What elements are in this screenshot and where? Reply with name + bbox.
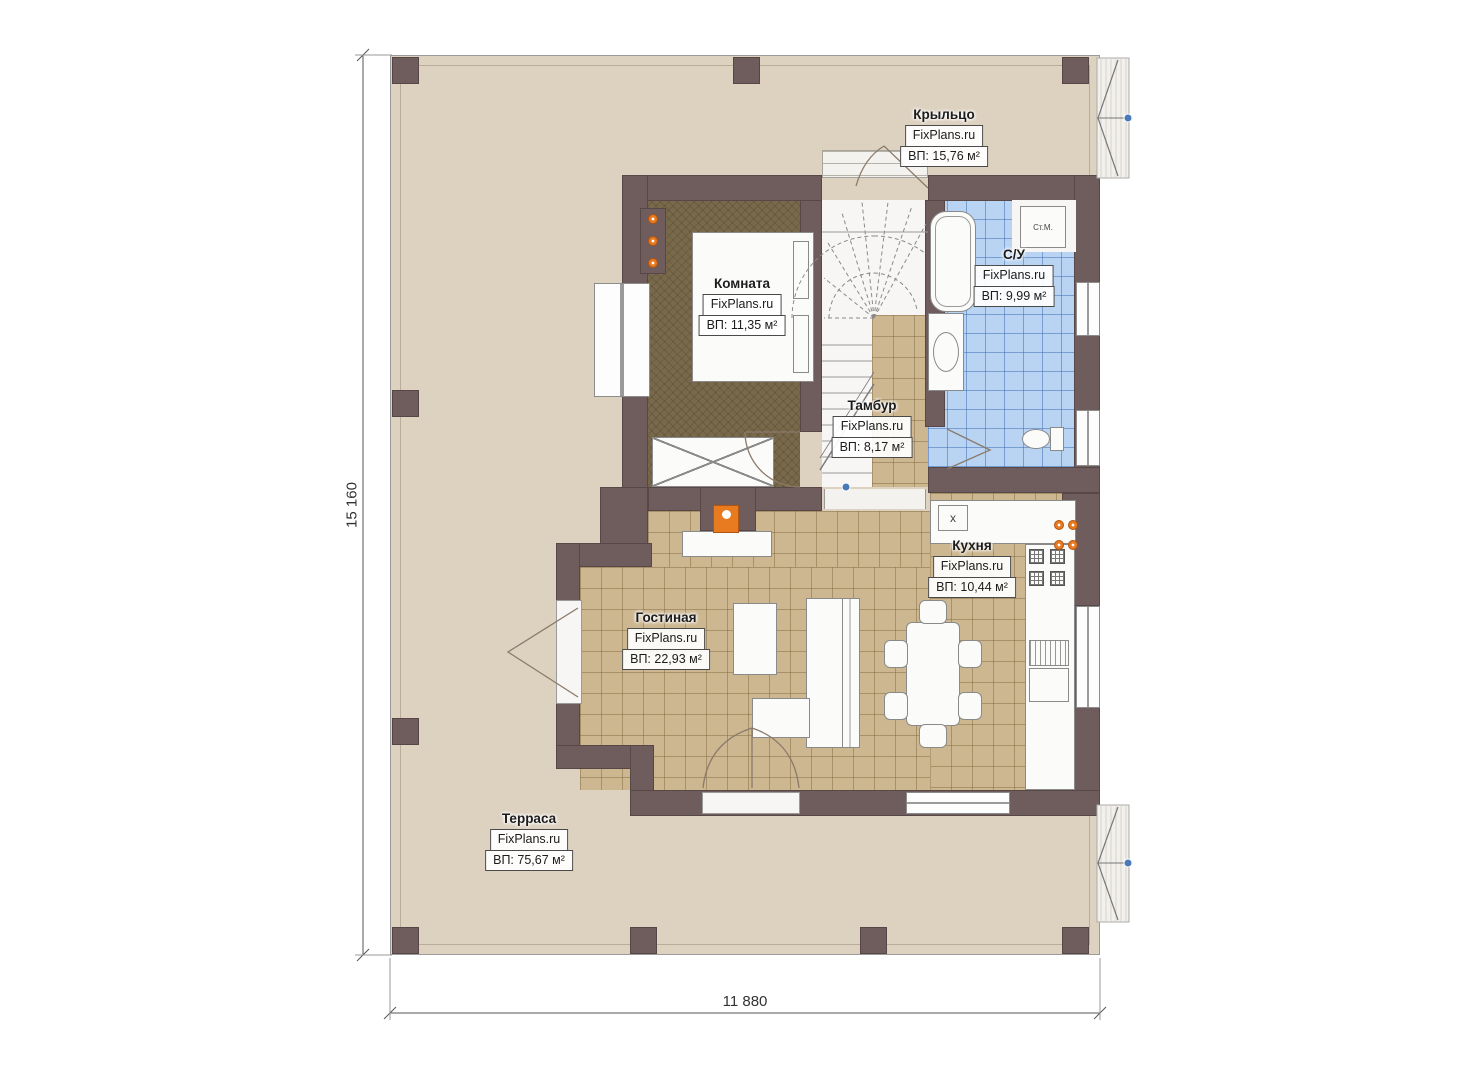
height-dimension-label: 15 160 (344, 482, 361, 528)
wardrobe (652, 437, 774, 487)
room-area: ВП: 22,93 м² (622, 649, 710, 671)
light-icon (1054, 540, 1064, 550)
dining-chair (884, 692, 908, 720)
light-icon (1068, 520, 1078, 530)
living-window (906, 792, 1010, 814)
room-name: С/У (1003, 247, 1025, 262)
exterior-steps (1097, 805, 1132, 922)
coffee-table (733, 603, 777, 675)
sofa (806, 598, 860, 748)
room-label-terrace: Терраса FixPlans.ru ВП: 75,67 м² (485, 811, 573, 871)
room-area: ВП: 75,67 м² (485, 850, 573, 872)
width-dimension-label: 11 880 (723, 993, 768, 1010)
bathtub (930, 211, 976, 312)
bathroom-sink (933, 332, 959, 372)
room-name: Терраса (502, 811, 556, 826)
exterior-steps (1097, 58, 1132, 178)
room-label-living: Гостиная FixPlans.ru ВП: 22,93 м² (622, 610, 710, 670)
kitchen-drainer (1029, 640, 1069, 666)
column (1062, 57, 1089, 84)
stove-burner (1029, 571, 1044, 586)
room-label-vestibule: Тамбур FixPlans.ru ВП: 8,17 м² (832, 398, 913, 458)
dining-chair (919, 600, 947, 624)
bathtub-inner (935, 216, 971, 307)
column (860, 927, 887, 954)
stove-burner (1029, 549, 1044, 564)
room-brand: FixPlans.ru (975, 265, 1054, 287)
fireplace-dot (722, 510, 731, 519)
kitchen-window (1076, 606, 1100, 708)
room-area: ВП: 15,76 м² (900, 146, 988, 168)
column (392, 390, 419, 417)
room-name: Комната (714, 276, 770, 291)
hall-opening (824, 489, 926, 509)
stairs-floor (822, 200, 928, 315)
wall (928, 467, 1100, 493)
pillow (793, 315, 809, 373)
light-icon (648, 258, 658, 268)
dining-chair (958, 692, 982, 720)
stove-burner (1050, 571, 1065, 586)
room-area: ВП: 9,99 м² (974, 286, 1055, 308)
room-brand: FixPlans.ru (703, 294, 782, 316)
column (1062, 927, 1089, 954)
stove-burner (1050, 549, 1065, 564)
dimension-line-bottom (384, 958, 1106, 1020)
light-icon (648, 236, 658, 246)
room-area: ВП: 8,17 м² (832, 437, 913, 459)
light-icon (648, 214, 658, 224)
dining-chair (884, 640, 908, 668)
kitchen-sink-symbol: x (938, 505, 968, 531)
floor-plan-canvas: Ст.М. x (0, 0, 1474, 1080)
washing-machine: Ст.М. (1020, 206, 1066, 248)
bathroom-window (1076, 410, 1100, 466)
light-icon (1068, 540, 1078, 550)
room-area: ВП: 10,44 м² (928, 577, 1016, 599)
room-name: Кухня (952, 538, 991, 553)
bathroom-counter (928, 313, 964, 391)
light-icon (1054, 520, 1064, 530)
room-label-bathroom: С/У FixPlans.ru ВП: 9,99 м² (974, 247, 1055, 307)
dining-chair (919, 724, 947, 748)
column (630, 927, 657, 954)
room-name: Крыльцо (913, 107, 974, 122)
terrace-door-opening (556, 600, 582, 704)
dimension-line-left (355, 49, 392, 961)
room-name: Тамбур (848, 398, 897, 413)
column (392, 57, 419, 84)
room-name: Гостиная (635, 610, 696, 625)
room-brand: FixPlans.ru (627, 628, 706, 650)
column (733, 57, 760, 84)
french-door-opening (702, 792, 800, 814)
kitchen-sink-symbol-label: x (950, 511, 956, 525)
room-label-porch: Крыльцо FixPlans.ru ВП: 15,76 м² (900, 107, 988, 167)
sofa-chaise (752, 698, 810, 738)
fireplace-hearth (682, 531, 772, 557)
column (392, 927, 419, 954)
room-brand: FixPlans.ru (905, 125, 984, 147)
pillow (793, 241, 809, 299)
sofa-back (842, 599, 859, 747)
kitchen-sink (1029, 668, 1069, 702)
toilet-tank (1050, 427, 1064, 451)
wall (622, 175, 822, 201)
room-brand: FixPlans.ru (833, 416, 912, 438)
room-label-kitchen: Кухня FixPlans.ru ВП: 10,44 м² (928, 538, 1016, 598)
room-brand: FixPlans.ru (933, 556, 1012, 578)
wall (630, 790, 1100, 816)
toilet (1022, 429, 1050, 449)
bedroom-window (594, 283, 650, 397)
dining-chair (958, 640, 982, 668)
room-area: ВП: 11,35 м² (699, 315, 786, 337)
room-brand: FixPlans.ru (490, 829, 569, 851)
dining-table (906, 622, 960, 726)
column (392, 718, 419, 745)
washing-machine-label: Ст.М. (1033, 223, 1053, 232)
room-label-bedroom: Комната FixPlans.ru ВП: 11,35 м² (699, 276, 786, 336)
bathroom-window (1076, 282, 1100, 336)
